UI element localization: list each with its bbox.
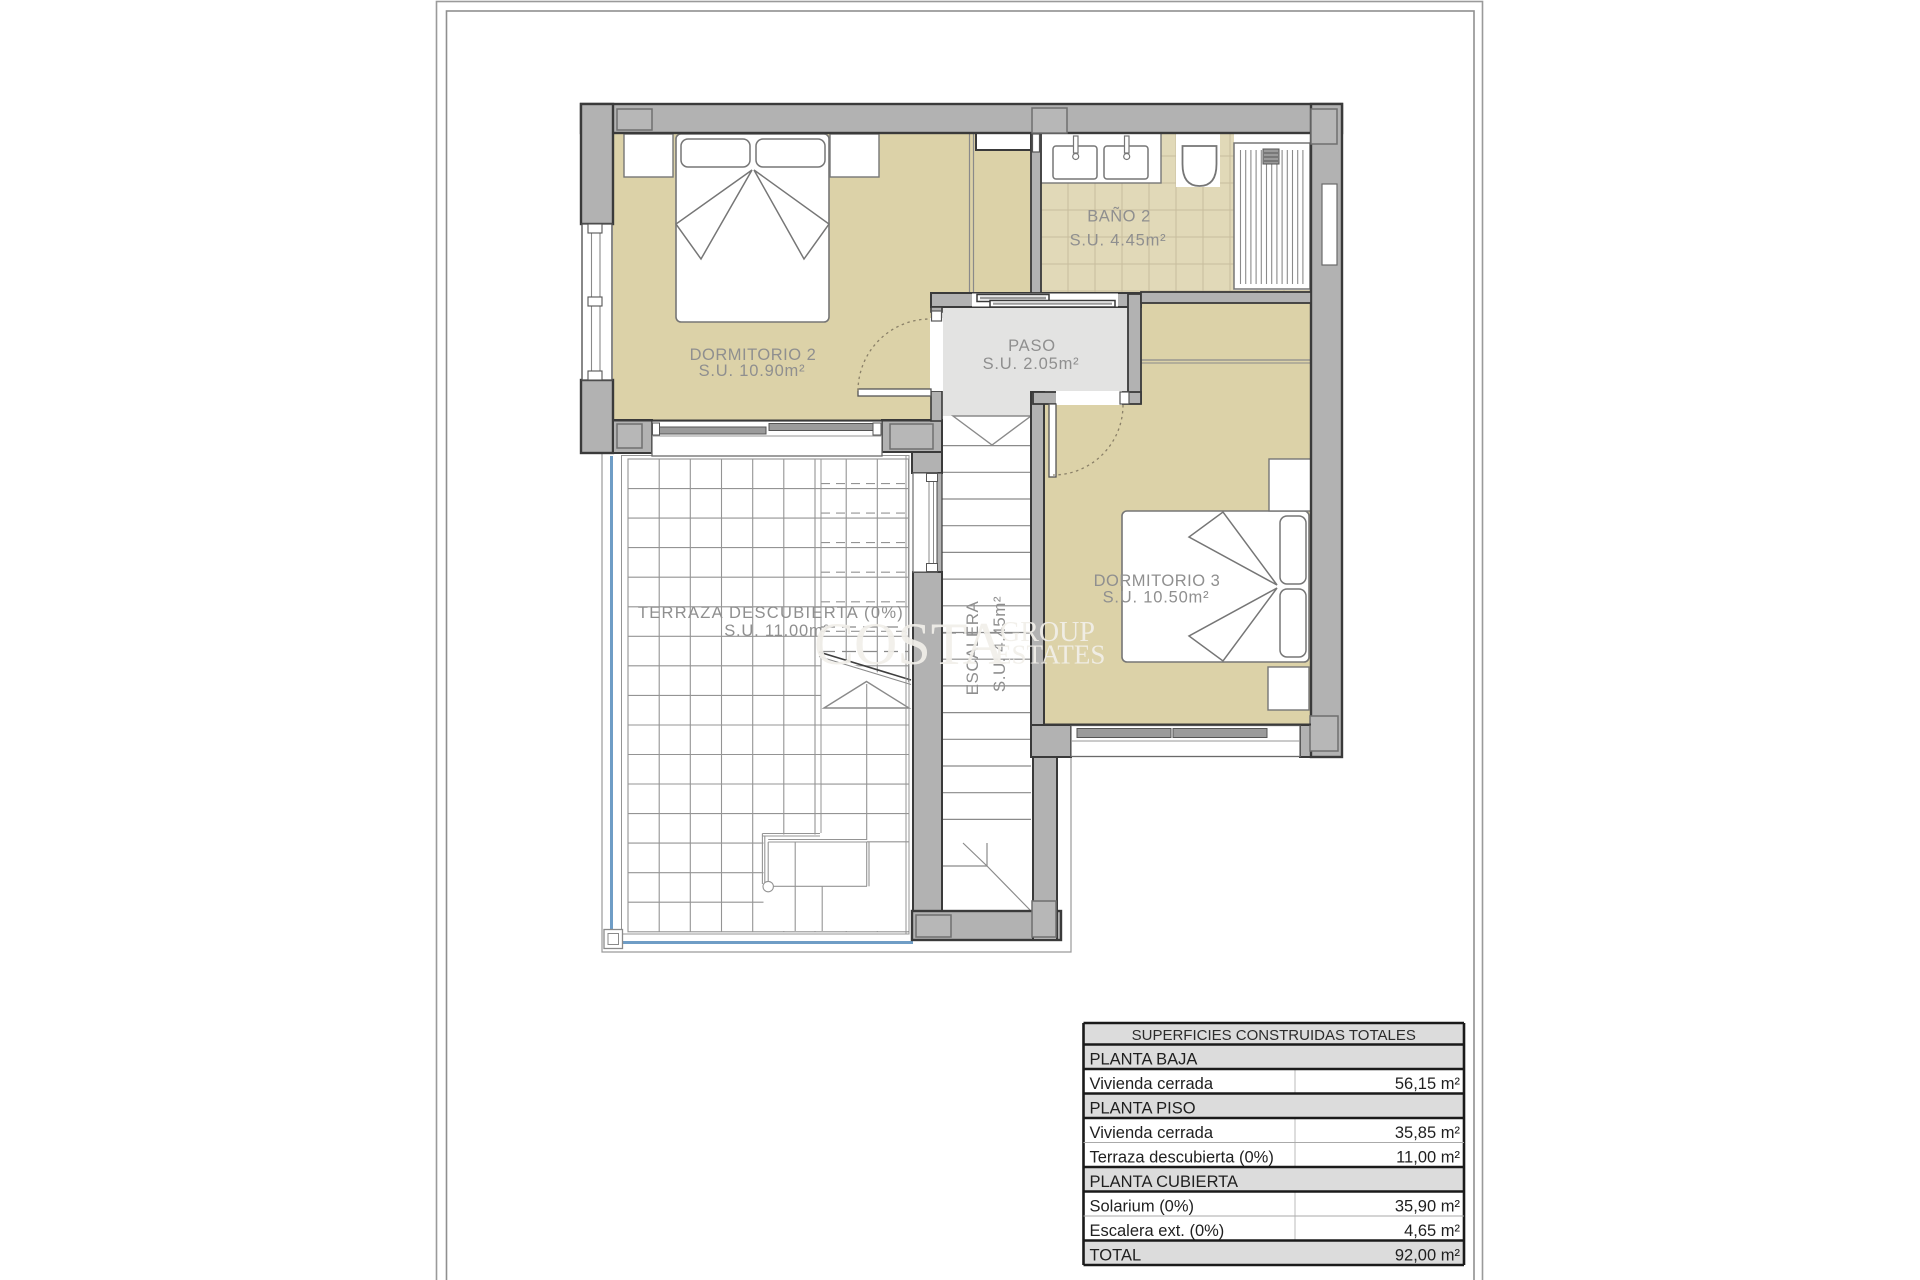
svg-text:Escalera ext. (0%): Escalera ext. (0%) xyxy=(1090,1222,1225,1240)
svg-text:S.U. 4.45m²: S.U. 4.45m² xyxy=(1070,232,1167,250)
svg-text:SUPERFICIES CONSTRUIDAS TOTALE: SUPERFICIES CONSTRUIDAS TOTALES xyxy=(1132,1027,1416,1044)
svg-text:S.U. 10.50m²: S.U. 10.50m² xyxy=(1103,589,1210,607)
svg-text:Vivienda cerrada: Vivienda cerrada xyxy=(1090,1124,1214,1142)
svg-text:DORMITORIO 3: DORMITORIO 3 xyxy=(1094,572,1221,590)
svg-text:PLANTA CUBIERTA: PLANTA CUBIERTA xyxy=(1090,1173,1239,1191)
svg-text:S.U. 10.90m²: S.U. 10.90m² xyxy=(699,362,806,380)
svg-text:PASO: PASO xyxy=(1008,337,1056,355)
svg-text:Solarium (0%): Solarium (0%) xyxy=(1090,1198,1195,1216)
svg-text:35,85 m²: 35,85 m² xyxy=(1395,1124,1461,1142)
svg-text:11,00 m²: 11,00 m² xyxy=(1396,1149,1460,1167)
svg-text:92,00 m²: 92,00 m² xyxy=(1395,1247,1461,1265)
svg-text:TOTAL: TOTAL xyxy=(1090,1247,1142,1265)
svg-text:PLANTA BAJA: PLANTA BAJA xyxy=(1090,1051,1198,1069)
svg-text:35,90 m²: 35,90 m² xyxy=(1395,1198,1461,1216)
svg-text:Vivienda cerrada: Vivienda cerrada xyxy=(1090,1075,1214,1093)
svg-text:S.U. 2.05m²: S.U. 2.05m² xyxy=(983,355,1080,373)
svg-text:4,65 m²: 4,65 m² xyxy=(1404,1222,1460,1240)
svg-text:56,15 m²: 56,15 m² xyxy=(1395,1075,1461,1093)
svg-text:Terraza descubierta (0%): Terraza descubierta (0%) xyxy=(1090,1149,1274,1167)
svg-text:COSTA: COSTA xyxy=(814,611,1006,677)
svg-text:ESTATES: ESTATES xyxy=(995,640,1105,670)
svg-text:BAÑO 2: BAÑO 2 xyxy=(1087,206,1151,226)
svg-text:PLANTA PISO: PLANTA PISO xyxy=(1090,1100,1196,1118)
